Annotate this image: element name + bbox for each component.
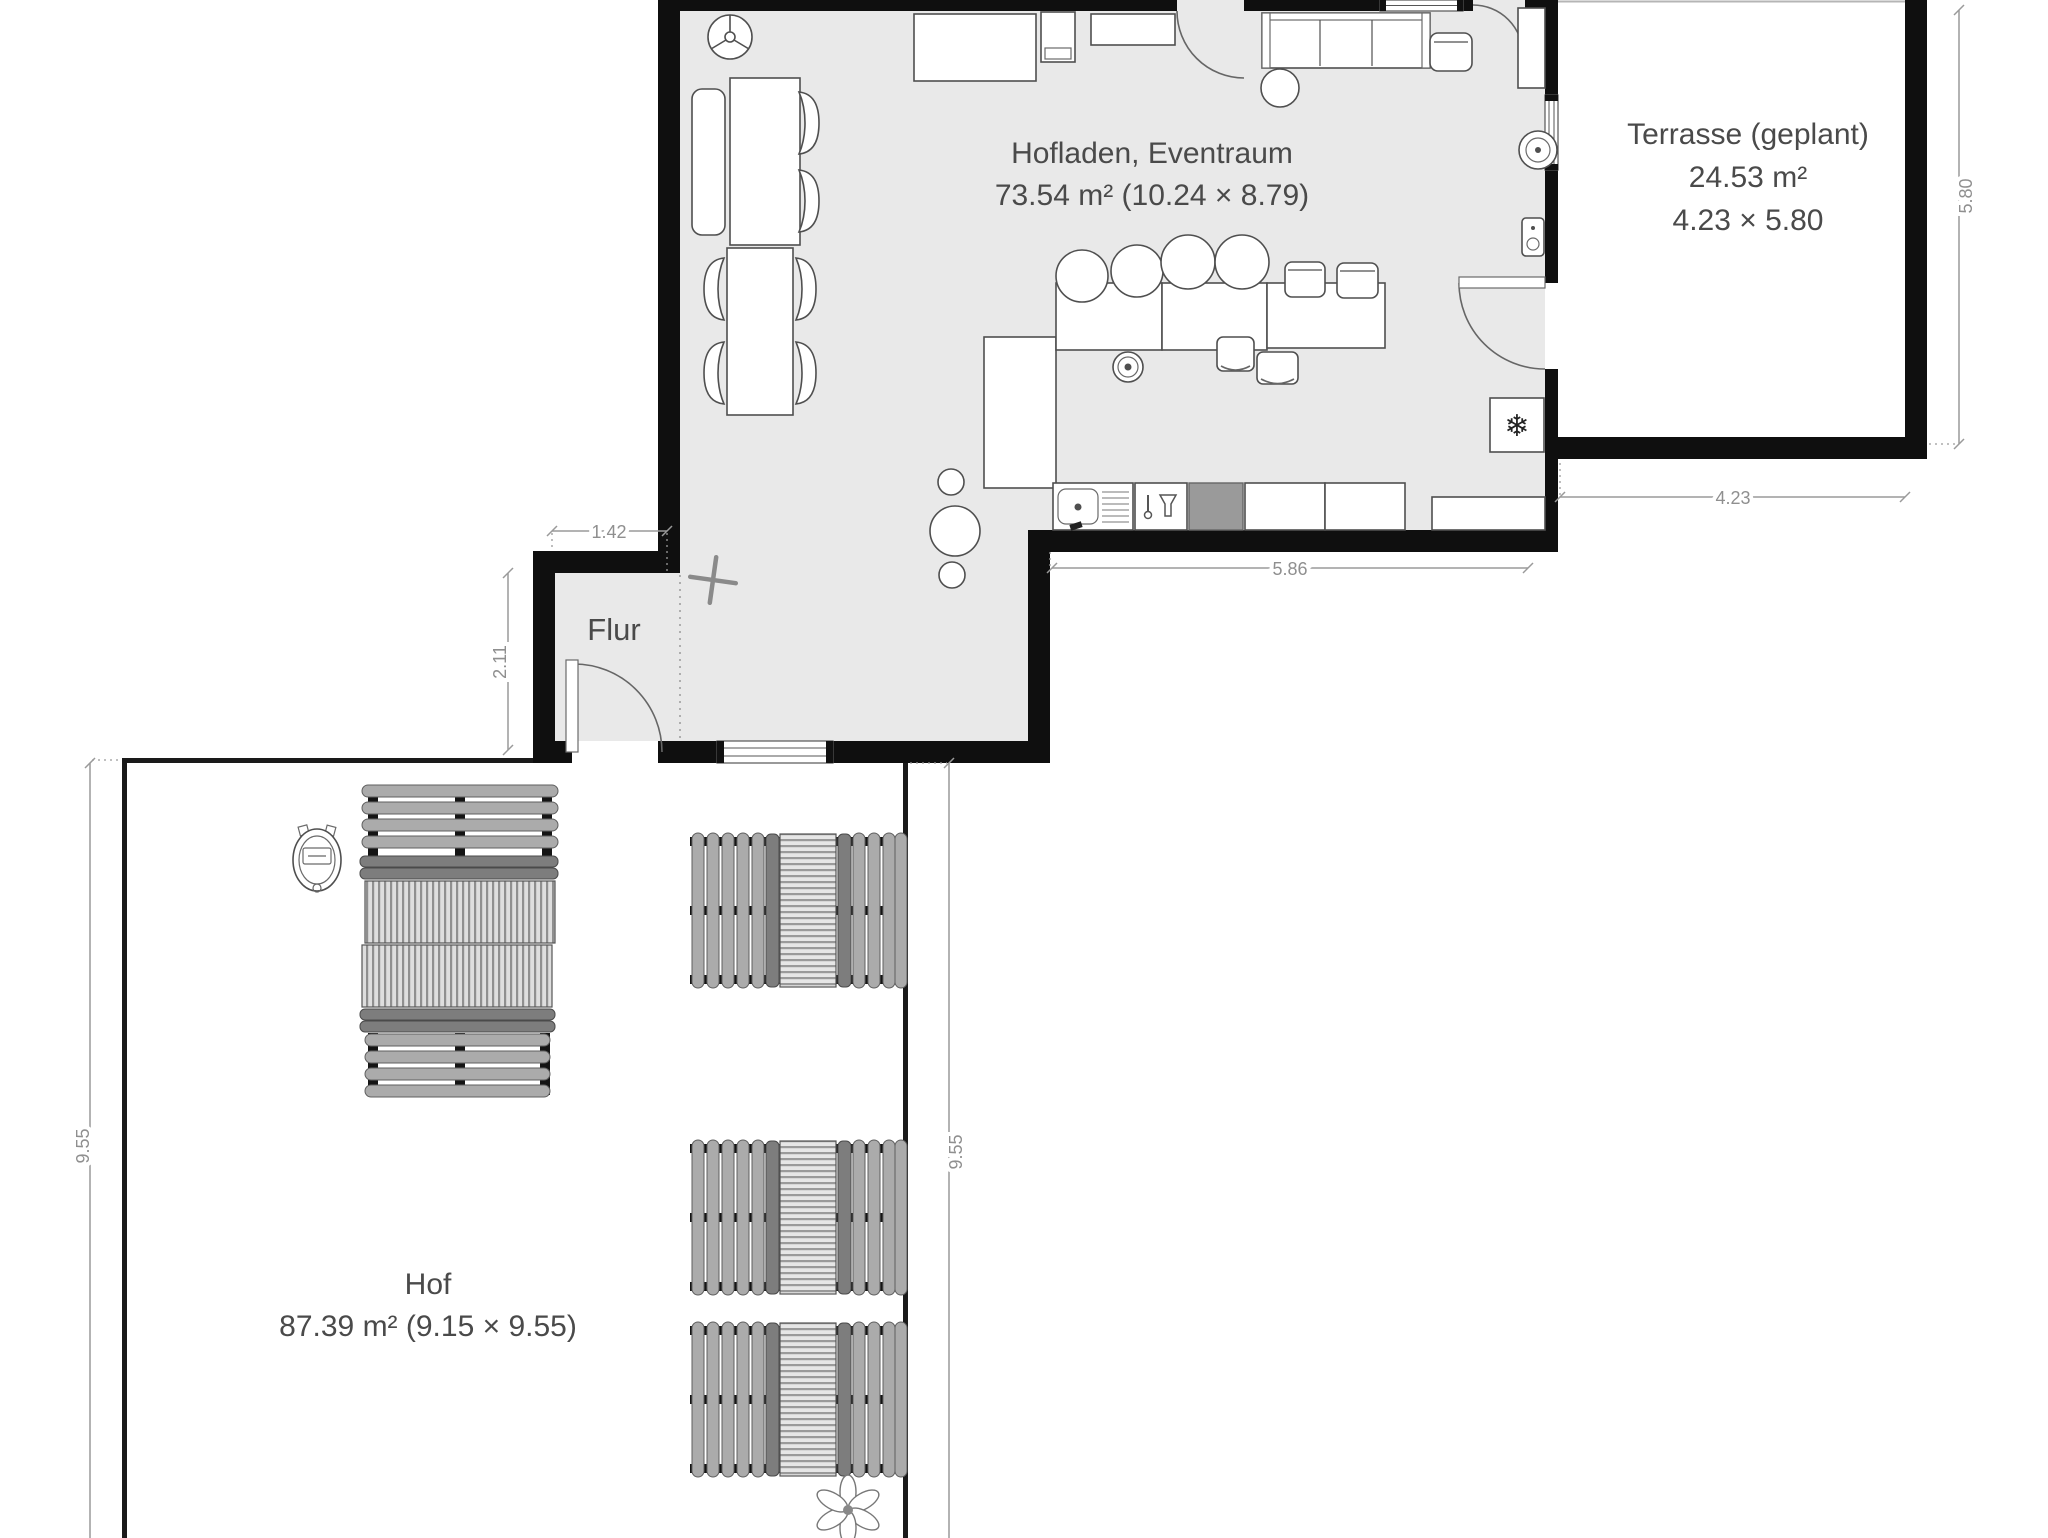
window-top-wall[interactable] [1380,0,1463,11]
pallet-bench-right[interactable] [690,833,907,988]
bar-stool[interactable] [1111,245,1163,297]
svg-text:9.55: 9.55 [73,1128,93,1163]
floorplan-canvas: ❄ [0,0,2048,1538]
bar-stool[interactable] [1161,235,1215,289]
ceiling-fan-icon[interactable] [708,15,752,59]
room-area: 24.53 m² [1689,161,1807,194]
sofa[interactable] [1262,13,1430,68]
room-area: 87.39 m² (9.15 × 9.55) [279,1310,577,1343]
room-name: Hof [405,1268,452,1301]
smoke-detector-icon[interactable] [1519,131,1557,169]
kitchen-sink[interactable] [1053,483,1133,531]
bar-stool[interactable] [1215,235,1269,289]
kitchen-fixture-unit[interactable] [1135,483,1187,530]
stool[interactable] [1257,352,1298,384]
room-size: 4.23 × 5.80 [1673,204,1824,237]
room-name: Flur [587,612,640,647]
counter-return[interactable] [984,337,1056,488]
dining-table-1[interactable] [730,78,800,245]
kitchen-counter-right[interactable] [1432,497,1545,530]
kitchen-appliance-grey[interactable] [1189,483,1243,530]
label-hof[interactable]: Hof 87.39 m² (9.15 × 9.55) [279,1268,577,1343]
wall-switch-box[interactable] [1522,218,1544,256]
dim-flur-height: 2.11 [490,568,513,755]
plant-hof-icon[interactable] [814,1475,883,1538]
dim-hof-left: 9.55 [73,758,120,1538]
dining-table-2[interactable] [727,248,793,415]
corner-cabinet[interactable] [1518,8,1545,88]
stool[interactable] [1217,337,1254,371]
kitchen-cabinet[interactable] [1325,483,1405,530]
room-area: 73.54 m² (10.24 × 8.79) [995,179,1309,212]
narrow-cabinet[interactable] [1041,12,1075,62]
room-name: Terrasse (geplant) [1627,118,1869,151]
room-name: Hofladen, Eventraum [1011,137,1293,170]
pallet-bench-right[interactable] [690,1322,907,1477]
cushion-stool[interactable] [1337,263,1378,298]
dim-hof-right: 9.55 [910,758,966,1538]
snowflake-icon: ❄ [1504,410,1529,443]
freezer[interactable]: ❄ [1490,398,1544,452]
wall-table[interactable] [1091,14,1175,45]
sideboard[interactable] [914,14,1036,81]
svg-text:5.86: 5.86 [1272,559,1307,579]
pallet-bench-right[interactable] [690,1140,907,1295]
svg-text:5.80: 5.80 [1956,178,1976,213]
pallet-bench-left[interactable] [360,785,558,1097]
bench[interactable] [692,89,725,235]
svg-text:4.23: 4.23 [1715,488,1750,508]
coffee-grinder-icon[interactable] [1113,352,1143,382]
dim-terrasse-height: 5.80 [1929,5,1976,449]
kitchen-cabinet[interactable] [1245,483,1325,530]
armchair[interactable] [1430,33,1472,71]
window-bottom[interactable] [717,741,833,763]
dim-kitchen-wall: 5.86 [1047,552,1533,579]
bar-stool[interactable] [1056,250,1108,302]
svg-text:1.42: 1.42 [591,522,626,542]
label-flur[interactable]: Flur [587,612,640,647]
round-side-table[interactable] [1261,69,1299,107]
dim-terrasse-width: 4.23 [1555,463,1910,508]
grill-icon[interactable] [293,825,341,892]
cushion-stool[interactable] [1285,262,1325,297]
svg-text:9.55: 9.55 [946,1134,966,1169]
svg-text:2.11: 2.11 [490,645,510,679]
